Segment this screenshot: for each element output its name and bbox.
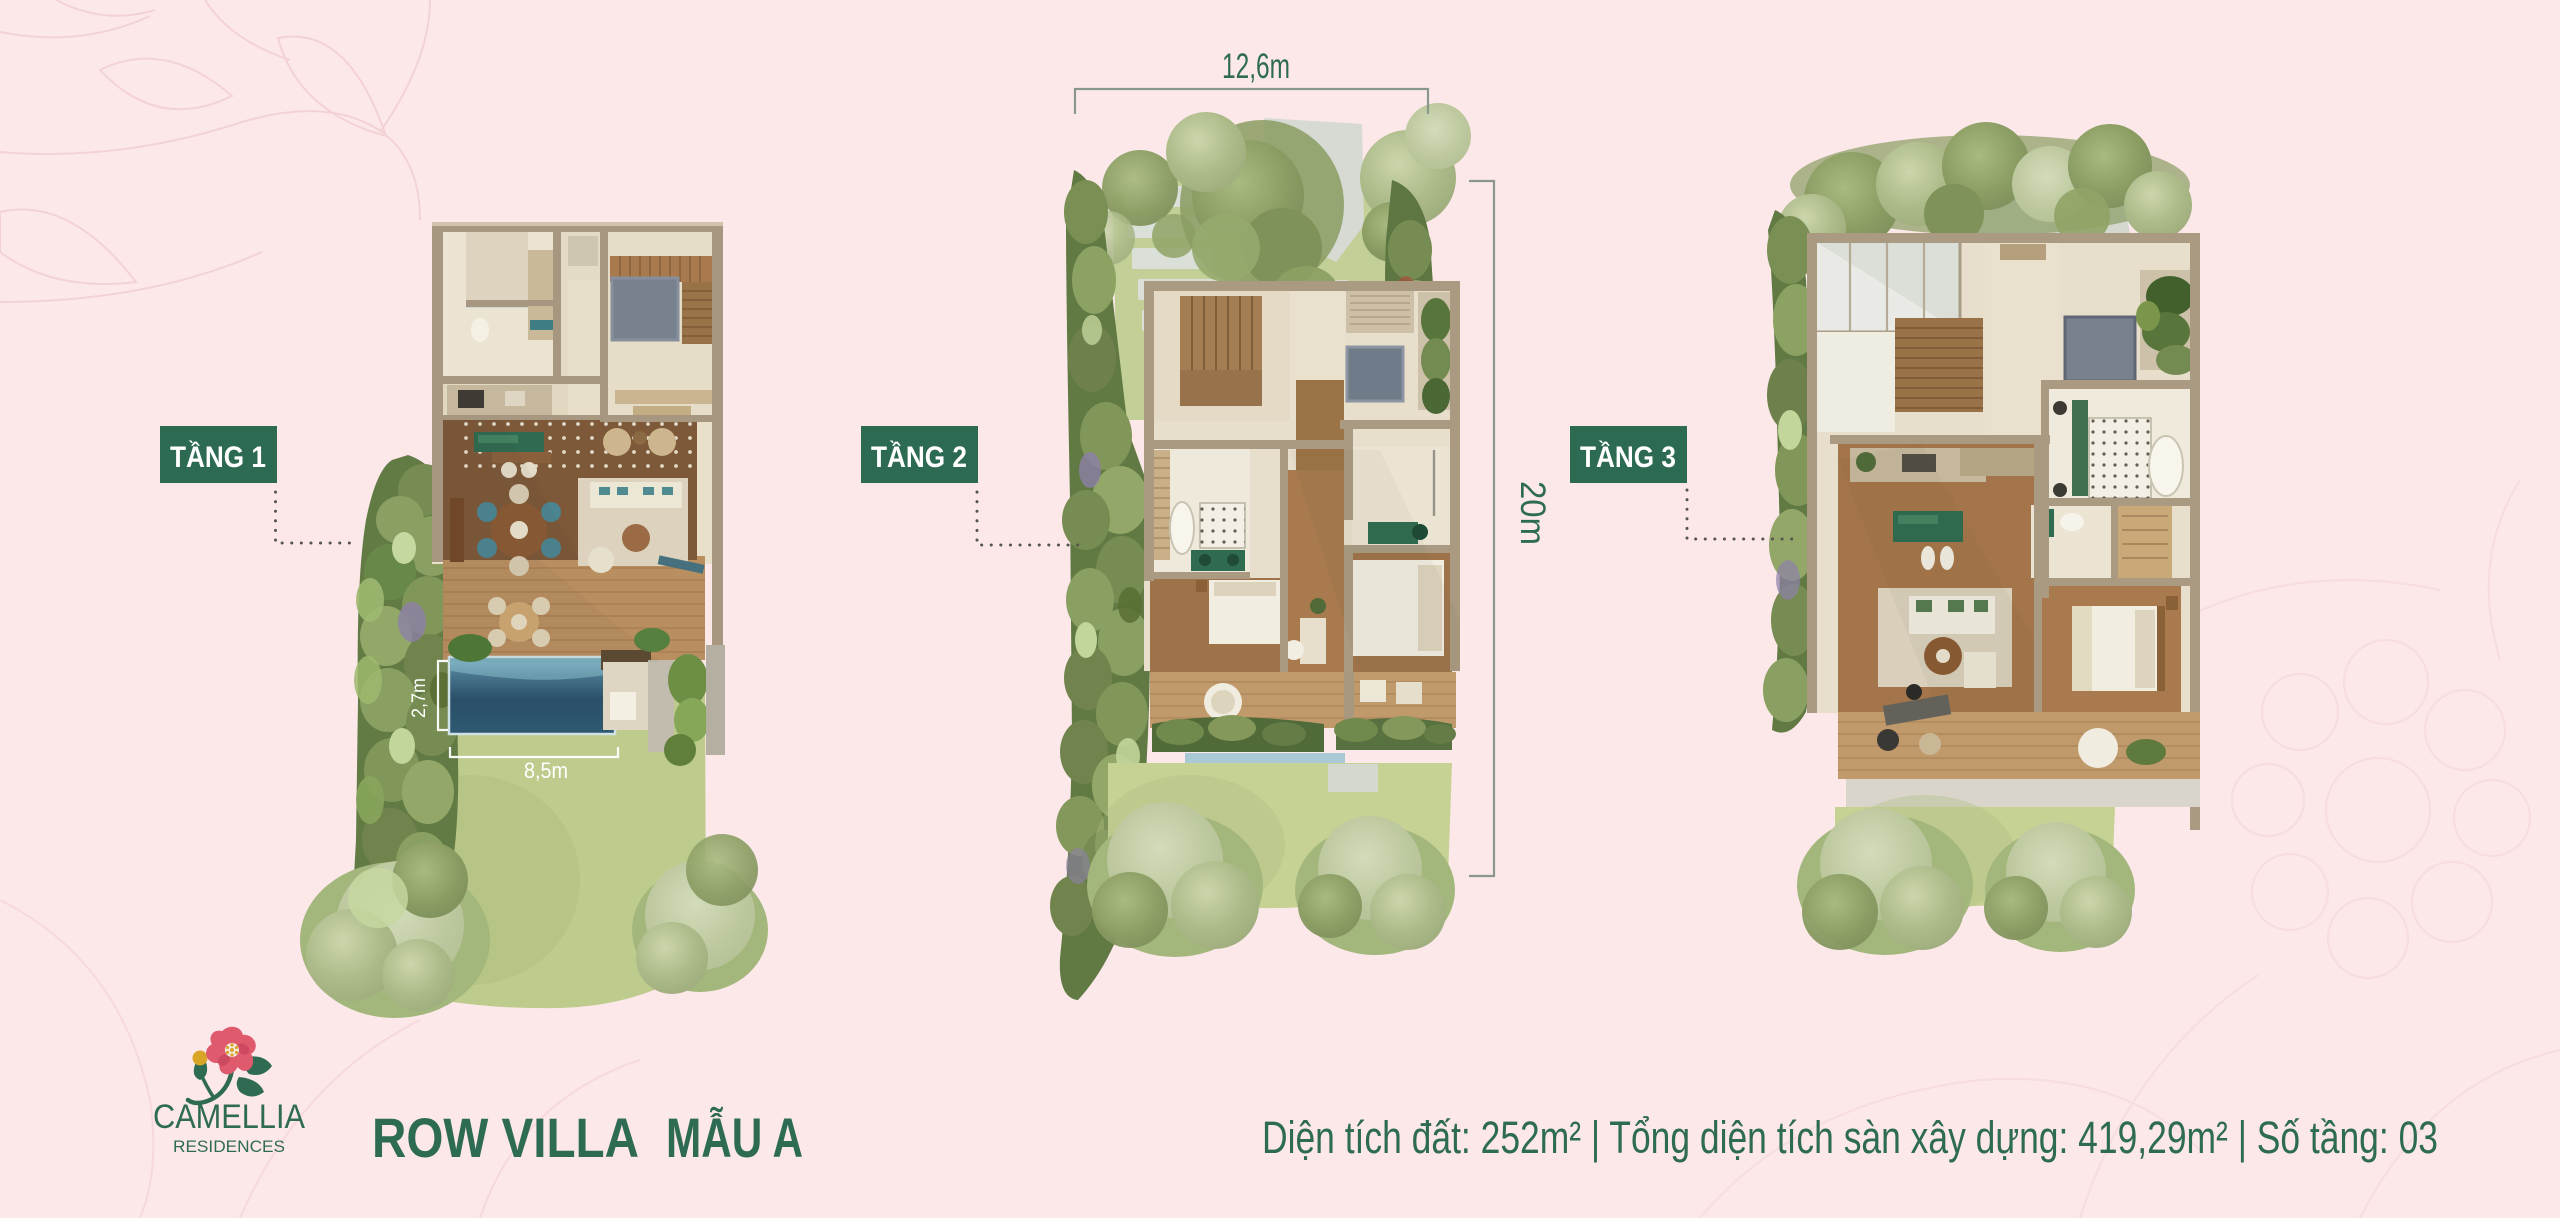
svg-text:MẪU A: MẪU A	[666, 1106, 803, 1169]
svg-text:20m: 20m	[1513, 481, 1552, 545]
svg-text:8,5m: 8,5m	[524, 758, 568, 783]
svg-text:TẦNG 2: TẦNG 2	[871, 440, 967, 474]
svg-text:TẦNG 3: TẦNG 3	[1580, 440, 1676, 474]
svg-text:2,7m: 2,7m	[409, 678, 430, 718]
svg-text:TẦNG 1: TẦNG 1	[170, 440, 266, 474]
svg-text:ROW VILLA: ROW VILLA	[372, 1106, 639, 1169]
svg-text:12,6m: 12,6m	[1222, 47, 1290, 86]
svg-text:Diện tích đất: 252m² | Tổng di: Diện tích đất: 252m² | Tổng diện tích sà…	[1262, 1112, 2438, 1163]
svg-text:CAMELLIA: CAMELLIA	[153, 1098, 305, 1136]
svg-text:RESIDENCES: RESIDENCES	[173, 1137, 285, 1156]
